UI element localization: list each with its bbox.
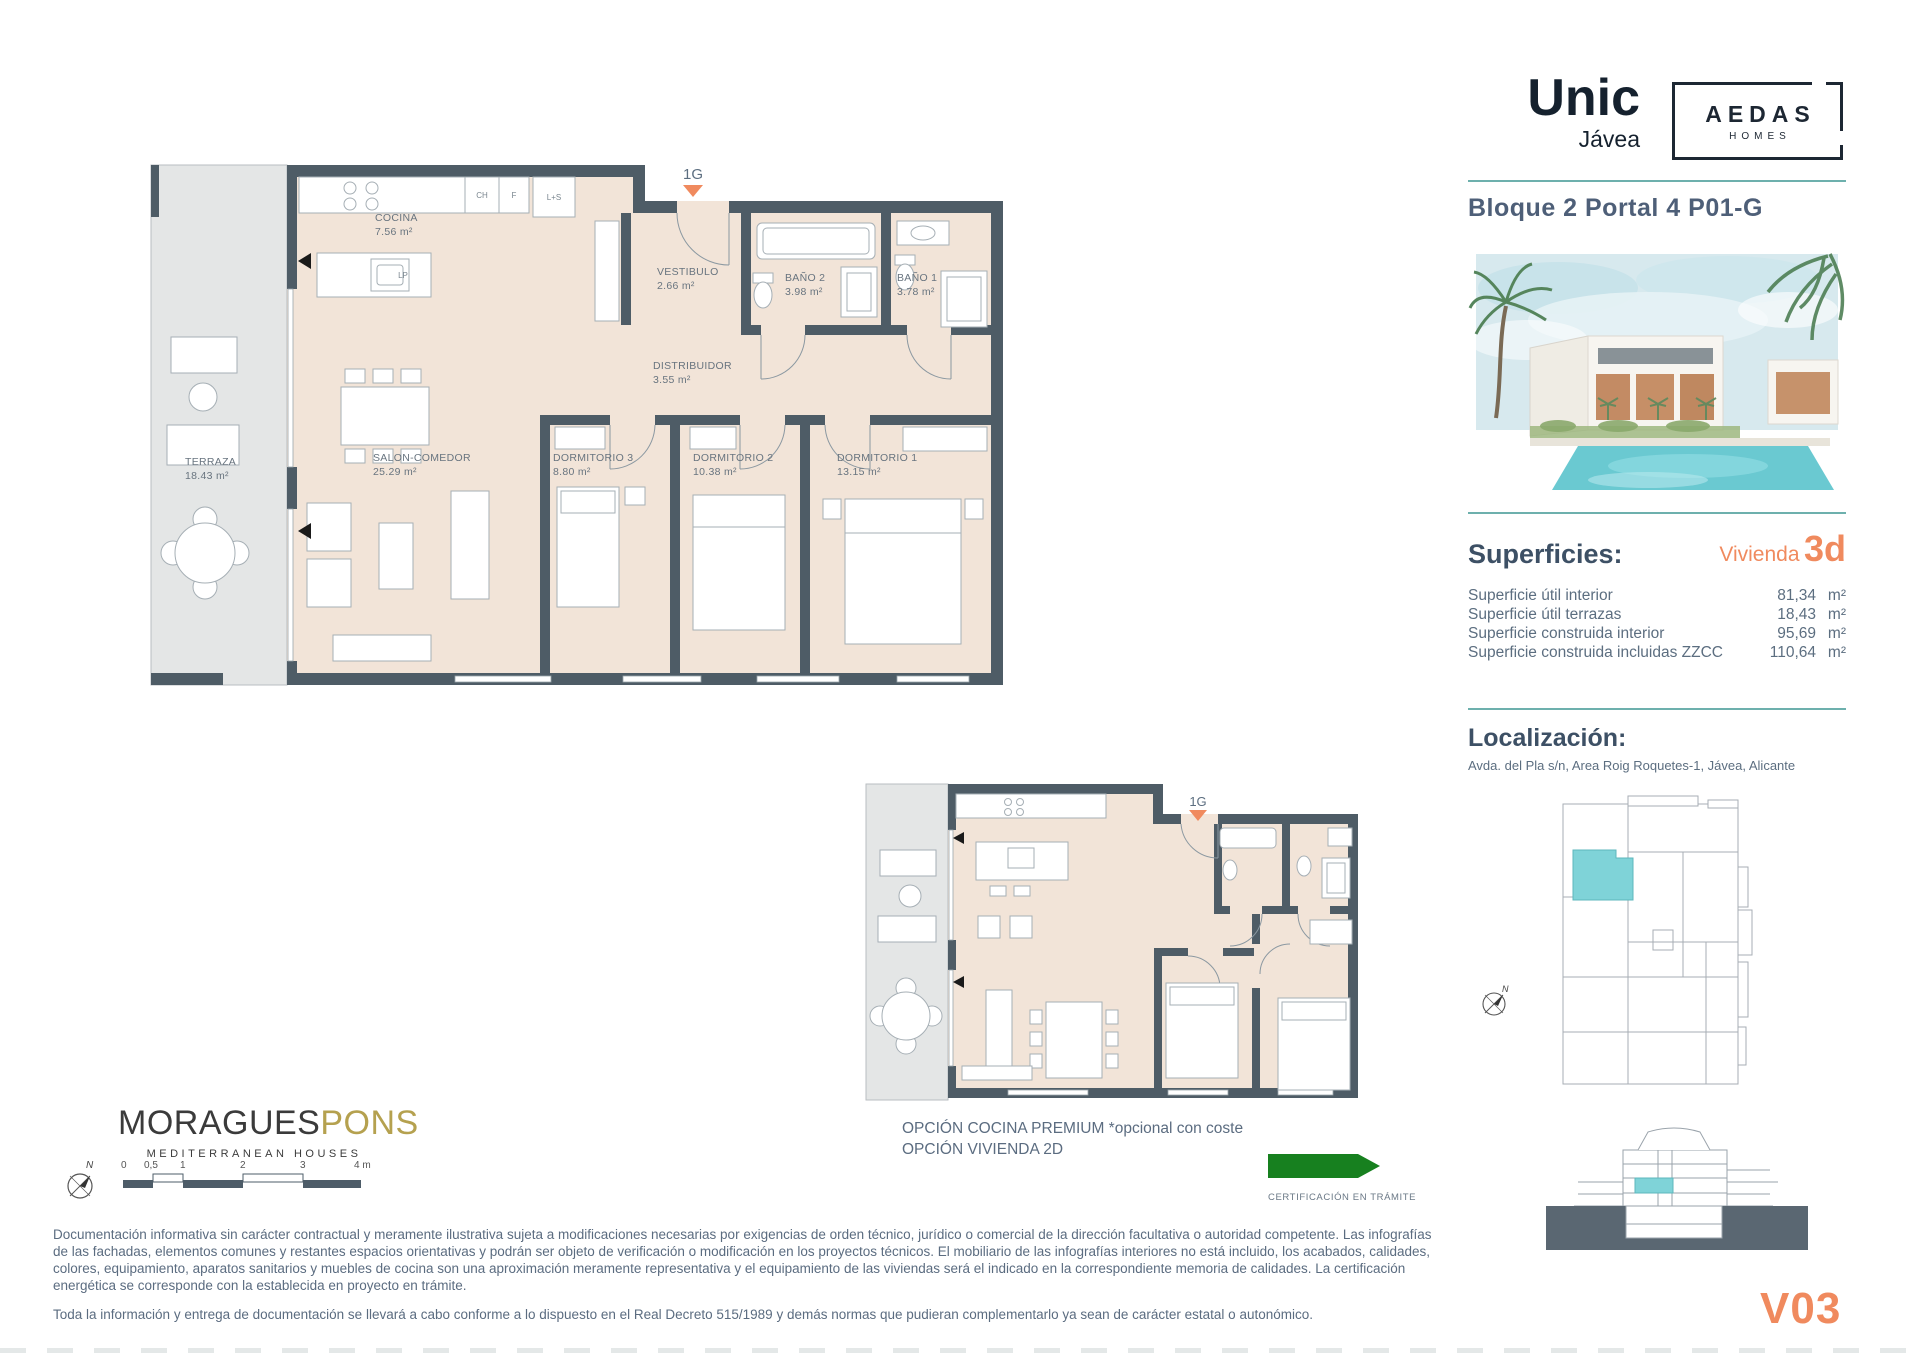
site-key-plan: N xyxy=(1478,792,1848,1092)
compass-icon: N xyxy=(62,1156,102,1204)
superficies-row: Superficie construida interior 95,69 m² xyxy=(1468,624,1846,643)
superficies-section: Superficies: Vivienda 3d Superficie útil… xyxy=(1468,528,1846,662)
elevation-basement xyxy=(1626,1206,1722,1238)
fixture-label-f: F xyxy=(512,191,517,200)
divider-2 xyxy=(1468,512,1846,514)
room-area-terraza: 18.43 m² xyxy=(185,470,229,482)
highlighted-floor xyxy=(1635,1178,1673,1193)
divider-3 xyxy=(1468,708,1846,710)
highlighted-unit xyxy=(1573,850,1633,900)
architect-logo: MORAGUESPONS xyxy=(118,1104,419,1143)
fixture-label-lp: LP xyxy=(398,271,408,280)
room-area-dorm1: 13.15 m² xyxy=(837,466,881,478)
room-area-distribuidor: 3.55 m² xyxy=(653,374,691,386)
page-edge-dashes xyxy=(0,1348,1920,1353)
room-label-bano1: BAÑO 1 xyxy=(897,271,937,284)
architect-name-secondary: PONS xyxy=(320,1104,418,1142)
fixture-label-ch: CH xyxy=(476,191,488,200)
localizacion-address: Avda. del Pla s/n, Area Roig Roquetes-1,… xyxy=(1468,758,1795,773)
scale-label-0: 0 xyxy=(121,1160,127,1171)
localizacion-title: Localización: xyxy=(1468,724,1626,753)
scale-label-1: 1 xyxy=(180,1160,186,1171)
room-label-terraza: TERRAZA xyxy=(185,456,236,468)
site-compass-north-label: N xyxy=(1502,984,1509,994)
scale-label-4: 4 m xyxy=(354,1160,371,1171)
superficie-unit: m² xyxy=(1816,605,1846,624)
compass-north-label: N xyxy=(86,1160,94,1171)
room-label-bano2: BAÑO 2 xyxy=(785,271,825,284)
room-label-salon: SALON-COMEDOR xyxy=(373,452,471,464)
aedas-logo: AEDAS HOMES xyxy=(1672,82,1843,160)
disclaimer-paragraph-2: Toda la información y entrega de documen… xyxy=(53,1306,1445,1323)
architect-name-primary: MORAGUES xyxy=(118,1104,320,1142)
room-area-salon: 25.29 m² xyxy=(373,466,417,478)
superficie-value: 95,69 xyxy=(1760,624,1816,643)
disclaimer: Documentación informativa sin carácter c… xyxy=(53,1226,1445,1335)
certification-arrow-icon xyxy=(1268,1152,1388,1182)
superficie-value: 18,43 xyxy=(1760,605,1816,624)
development-location: Jávea xyxy=(1505,126,1640,153)
aedas-notch-top xyxy=(1812,80,1826,87)
site-compass-icon: N xyxy=(1483,984,1509,1015)
room-area-cocina: 7.56 m² xyxy=(375,226,413,238)
aedas-sub: HOMES xyxy=(1724,131,1791,142)
entrance-marker-label: 1G xyxy=(683,166,703,183)
superficies-title: Superficies: xyxy=(1468,539,1623,570)
superficie-label: Superficie construida interior xyxy=(1468,624,1760,643)
superficie-unit: m² xyxy=(1816,586,1846,605)
room-label-vestibulo: VESTIBULO xyxy=(657,266,719,278)
scale-bar: 0 0,5 1 2 3 4 m xyxy=(118,1156,388,1200)
superficie-value: 110,64 xyxy=(1760,643,1816,662)
option-caption-1: OPCIÓN COCINA PREMIUM *opcional con cost… xyxy=(902,1118,1243,1139)
brochure-page: 1G CH F L+S LP COCINA 7.56 m² VESTIBULO … xyxy=(0,0,1920,1358)
room-area-dorm3: 8.80 m² xyxy=(553,466,591,478)
superficies-row: Superficie útil interior 81,34 m² xyxy=(1468,586,1846,605)
vivienda-label: Vivienda xyxy=(1719,543,1799,566)
vivienda-value: 3d xyxy=(1804,528,1846,569)
room-label-cocina: COCINA xyxy=(375,212,418,224)
aedas-notch-bottom xyxy=(1838,131,1845,145)
room-area-dorm2: 10.38 m² xyxy=(693,466,737,478)
building-render-image xyxy=(1468,248,1846,494)
divider-1 xyxy=(1468,180,1846,182)
option-captions: OPCIÓN COCINA PREMIUM *opcional con cost… xyxy=(902,1118,1243,1160)
superficie-label: Superficie útil interior xyxy=(1468,586,1760,605)
option-terrace xyxy=(866,784,948,1100)
room-label-dorm3: DORMITORIO 3 xyxy=(553,452,633,464)
unit-title: Bloque 2 Portal 4 P01-G xyxy=(1468,194,1763,223)
superficie-label: Superficie construida incluidas ZZCC xyxy=(1468,643,1760,662)
room-area-bano2: 3.98 m² xyxy=(785,286,823,298)
option-entrance-marker-label: 1G xyxy=(1189,794,1206,809)
entrance-marker-icon xyxy=(683,185,703,197)
superficie-value: 81,34 xyxy=(1760,586,1816,605)
superficie-unit: m² xyxy=(1816,624,1846,643)
room-label-dorm2: DORMITORIO 2 xyxy=(693,452,773,464)
terrace-area xyxy=(151,165,287,685)
main-floor-plan: 1G CH F L+S LP COCINA 7.56 m² VESTIBULO … xyxy=(145,135,1005,705)
option-caption-2: OPCIÓN VIVIENDA 2D xyxy=(902,1139,1243,1160)
elevation-key xyxy=(1538,1118,1818,1258)
aedas-name: AEDAS xyxy=(1699,101,1816,128)
disclaimer-paragraph-1: Documentación informativa sin carácter c… xyxy=(53,1226,1445,1294)
certification-label: CERTIFICACIÓN EN TRÁMITE xyxy=(1268,1192,1416,1203)
room-label-dorm1: DORMITORIO 1 xyxy=(837,452,917,464)
superficies-row: Superficie útil terrazas 18,43 m² xyxy=(1468,605,1846,624)
superficie-label: Superficie útil terrazas xyxy=(1468,605,1760,624)
scale-label-2: 2 xyxy=(240,1160,246,1171)
development-name: Unic xyxy=(1505,72,1640,124)
superficie-unit: m² xyxy=(1816,643,1846,662)
fixture-label-ls: L+S xyxy=(547,193,561,202)
development-logo: Unic Jávea xyxy=(1505,72,1640,153)
superficies-row: Superficie construida incluidas ZZCC 110… xyxy=(1468,643,1846,662)
scale-label-3: 3 xyxy=(300,1160,306,1171)
room-label-distribuidor: DISTRIBUIDOR xyxy=(653,360,732,372)
room-area-bano1: 3.78 m² xyxy=(897,286,935,298)
option-floor-plan: 1G xyxy=(858,758,1408,1118)
scale-label-05: 0,5 xyxy=(144,1160,158,1171)
version-label: V03 xyxy=(1760,1284,1841,1334)
room-area-vestibulo: 2.66 m² xyxy=(657,280,695,292)
